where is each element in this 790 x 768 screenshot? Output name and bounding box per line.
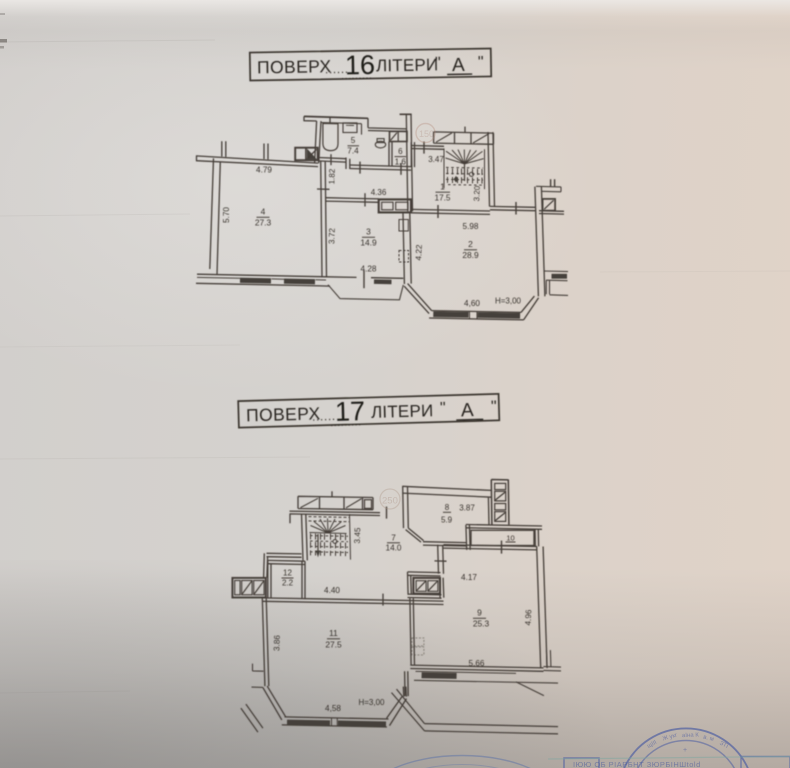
svg-text:17.5: 17.5 — [435, 194, 451, 203]
svg-text:14.9: 14.9 — [360, 238, 377, 248]
svg-text:H=3,00: H=3,00 — [358, 698, 385, 707]
svg-text:4,58: 4,58 — [325, 704, 341, 713]
svg-text:250: 250 — [382, 496, 398, 507]
svg-text:": " — [478, 54, 484, 71]
svg-text:3.72: 3.72 — [327, 227, 337, 244]
svg-text:4.22: 4.22 — [414, 244, 424, 261]
svg-text:3.45: 3.45 — [353, 527, 363, 544]
svg-text:5.9: 5.9 — [441, 516, 453, 525]
svg-text:.........: ......... — [341, 71, 372, 83]
svg-text:": " — [435, 55, 441, 72]
svg-text:1.82: 1.82 — [327, 168, 337, 184]
svg-text:7.4: 7.4 — [347, 147, 359, 156]
svg-text:25.3: 25.3 — [473, 619, 490, 629]
svg-text:2.2: 2.2 — [282, 579, 294, 588]
svg-text:А: А — [461, 400, 475, 421]
svg-text:9: 9 — [477, 608, 482, 618]
svg-text:8: 8 — [445, 503, 450, 512]
svg-text:3.87: 3.87 — [459, 504, 475, 513]
svg-text:ЛІТЕРИ: ЛІТЕРИ — [376, 55, 439, 75]
svg-text:28.9: 28.9 — [462, 250, 479, 260]
svg-text:": " — [491, 398, 497, 415]
svg-text:ПОВЕРХ: ПОВЕРХ — [246, 403, 321, 425]
svg-text:4,60: 4,60 — [464, 299, 480, 308]
svg-text:12: 12 — [283, 569, 292, 578]
svg-text:4.40: 4.40 — [324, 586, 340, 595]
svg-text:ЛІТЕРИ: ЛІТЕРИ — [371, 401, 434, 422]
svg-text:5.98: 5.98 — [463, 222, 479, 231]
svg-text:11: 11 — [329, 628, 338, 638]
svg-text:H=3,00: H=3,00 — [495, 297, 522, 306]
svg-text:в. м: в. м — [703, 735, 715, 743]
svg-text:4.96: 4.96 — [524, 609, 534, 626]
svg-text:14.0: 14.0 — [386, 544, 402, 553]
svg-text:5: 5 — [351, 136, 356, 145]
svg-text:5.66: 5.66 — [469, 659, 485, 668]
svg-text:150: 150 — [419, 129, 434, 139]
svg-text:4.17: 4.17 — [461, 573, 477, 582]
svg-text:3.20: 3.20 — [472, 185, 482, 202]
svg-text:3.86: 3.86 — [272, 634, 282, 651]
svg-text:ПОВЕРХ: ПОВЕРХ — [257, 56, 332, 77]
svg-text:": " — [440, 400, 446, 417]
svg-text:ІЮЮ ОБ РІАРБНТ ЗЮРБІНШtold: ІЮЮ ОБ РІАРБНТ ЗЮРБІНШtold — [573, 760, 701, 768]
svg-text:7: 7 — [391, 534, 396, 543]
svg-text:3.47: 3.47 — [428, 155, 444, 164]
svg-text:аїна К: аїна К — [682, 732, 700, 739]
svg-text:4: 4 — [261, 207, 266, 217]
svg-text:+: + — [683, 747, 687, 754]
svg-text:.........: ......... — [330, 417, 362, 429]
svg-text:6: 6 — [398, 147, 403, 156]
svg-text:4.36: 4.36 — [371, 188, 387, 197]
svg-text:1: 1 — [440, 183, 445, 192]
svg-text:3: 3 — [366, 227, 371, 237]
svg-text:А: А — [452, 55, 465, 76]
svg-text:2: 2 — [468, 239, 473, 249]
svg-text:10: 10 — [506, 534, 514, 543]
svg-text:1.6: 1.6 — [395, 158, 407, 167]
svg-text:27.3: 27.3 — [255, 218, 272, 228]
svg-text:4.79: 4.79 — [256, 166, 272, 175]
svg-text:5.70: 5.70 — [222, 207, 231, 223]
svg-text:27.5: 27.5 — [325, 640, 342, 650]
svg-text:4.28: 4.28 — [361, 265, 377, 274]
